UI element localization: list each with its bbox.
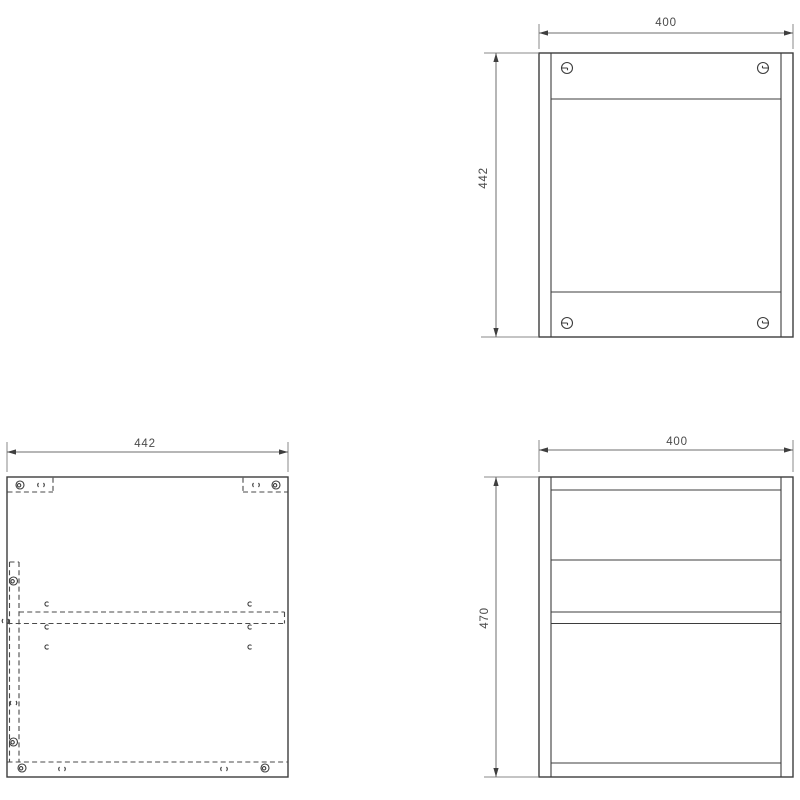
- dashed-corner-right: [243, 478, 288, 492]
- cam-screw-icon: [562, 63, 573, 74]
- front-width-dimension: 400: [539, 436, 793, 472]
- dim-label-width: 400: [655, 17, 677, 29]
- pilot-hole-icon: [45, 602, 49, 606]
- dowel-hole-icon: [2, 619, 8, 623]
- cam-screw-icon: [562, 318, 573, 329]
- arrow-left-icon: [539, 30, 548, 35]
- back-panel-width-dimension: 400: [539, 17, 793, 49]
- back-panel-outline: [539, 53, 793, 337]
- cam-fitting-icon: [261, 764, 269, 772]
- front-outline: [539, 477, 793, 777]
- extension-lines: [481, 53, 538, 337]
- pilot-hole-icon: [248, 625, 252, 629]
- arrow-down-icon: [493, 768, 498, 777]
- dashed-corner-left: [8, 478, 54, 492]
- arrow-down-icon: [493, 328, 498, 337]
- dim-label-height: 442: [478, 167, 490, 189]
- front-view: 400 470: [479, 436, 793, 777]
- back-panel-side-edges: [551, 53, 781, 337]
- arrow-left-icon: [539, 447, 548, 452]
- arrow-up-icon: [493, 53, 498, 62]
- dashed-side-strip: [10, 562, 20, 762]
- pilot-hole-icon: [248, 602, 252, 606]
- cam-fitting-icon: [10, 577, 18, 585]
- arrow-up-icon: [493, 477, 498, 486]
- arrow-right-icon: [784, 30, 793, 35]
- dowel-hole-icon: [253, 483, 259, 487]
- front-shelf-lines: [551, 490, 781, 763]
- dowel-hole-icon: [59, 767, 65, 771]
- back-panel-view: 400 442: [478, 17, 793, 337]
- arrow-right-icon: [279, 449, 288, 454]
- arrow-right-icon: [784, 447, 793, 452]
- panel-plan-view: 442: [2, 438, 288, 777]
- cam-fitting-icon: [272, 481, 280, 489]
- cam-fitting-icon: [16, 481, 24, 489]
- cam-fitting-icon: [10, 738, 18, 746]
- front-side-edges: [551, 477, 781, 777]
- panel-outline: [7, 477, 288, 777]
- arrow-left-icon: [7, 449, 16, 454]
- dim-label-width: 400: [666, 436, 688, 448]
- pilot-hole-icon: [248, 645, 252, 649]
- dowel-hole-icon: [38, 483, 44, 487]
- dashed-shelf-band: [8, 612, 285, 624]
- extension-lines: [484, 477, 538, 777]
- technical-drawing: 400 442: [0, 0, 800, 800]
- dim-label-width: 442: [134, 438, 156, 450]
- back-panel-height-dimension: 442: [478, 53, 538, 337]
- panel-plan-width-dimension: 442: [7, 438, 288, 472]
- cam-fitting-icon: [18, 764, 26, 772]
- pilot-hole-icon: [45, 645, 49, 649]
- dowel-hole-icon: [10, 701, 16, 705]
- cam-screw-icon: [758, 318, 769, 329]
- pilot-hole-icon: [45, 625, 49, 629]
- dowel-hole-icon: [221, 767, 227, 771]
- front-height-dimension: 470: [479, 477, 538, 777]
- cam-screw-icon: [758, 63, 769, 74]
- dim-label-height: 470: [479, 607, 491, 629]
- back-panel-rail-lines: [551, 99, 781, 292]
